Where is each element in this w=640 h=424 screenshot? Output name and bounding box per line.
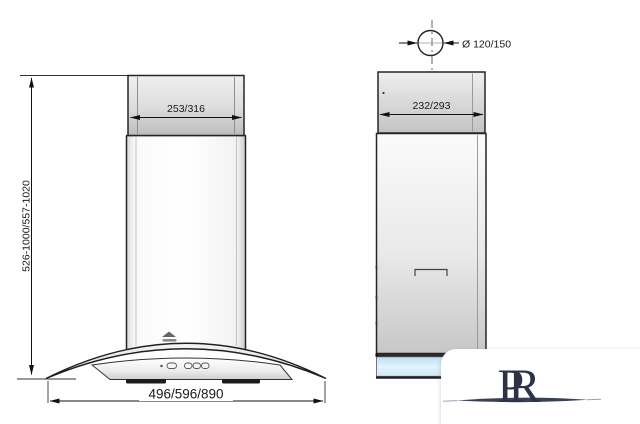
speed-button-3 [202, 363, 210, 369]
logo-letter-r: R [509, 360, 541, 413]
dim-height: 526-1000/557-1020 [17, 76, 128, 380]
dim-height-label: 526-1000/557-1020 [21, 180, 33, 272]
dim-duct-label: Ø 120/150 [462, 39, 511, 51]
speed-button-1 [185, 363, 193, 369]
dim-depth-label: 232/293 [413, 100, 451, 112]
watermark: P R [441, 349, 640, 424]
side-view: 232/293 Ø 120/150 [375, 20, 511, 378]
canopy-metal-face [92, 358, 292, 380]
dim-overall-width-label: 496/596/890 [148, 387, 223, 402]
light-button [167, 363, 177, 369]
cooker-hood-dimension-drawing: 253/316 [0, 0, 640, 424]
dim-overall-width: 496/596/890 [48, 381, 325, 403]
drawing-svg: 253/316 [0, 0, 640, 424]
front-lower-chimney [126, 136, 246, 353]
canopy-foot-right [222, 379, 260, 384]
dim-chimney-width-label: 253/316 [167, 103, 205, 115]
brand-logo-text [163, 339, 177, 342]
control-panel [160, 363, 209, 369]
watermark-logo: P R [498, 360, 541, 413]
speed-button-2 [193, 363, 201, 369]
front-view: 253/316 [17, 76, 326, 404]
front-lower-chimney-body [127, 136, 246, 353]
side-body-panel [377, 134, 487, 354]
dim-duct: Ø 120/150 [399, 31, 511, 56]
side-body [376, 134, 486, 354]
screw-dot [382, 92, 384, 94]
power-indicator [160, 365, 162, 367]
canopy-foot-left [126, 379, 166, 384]
